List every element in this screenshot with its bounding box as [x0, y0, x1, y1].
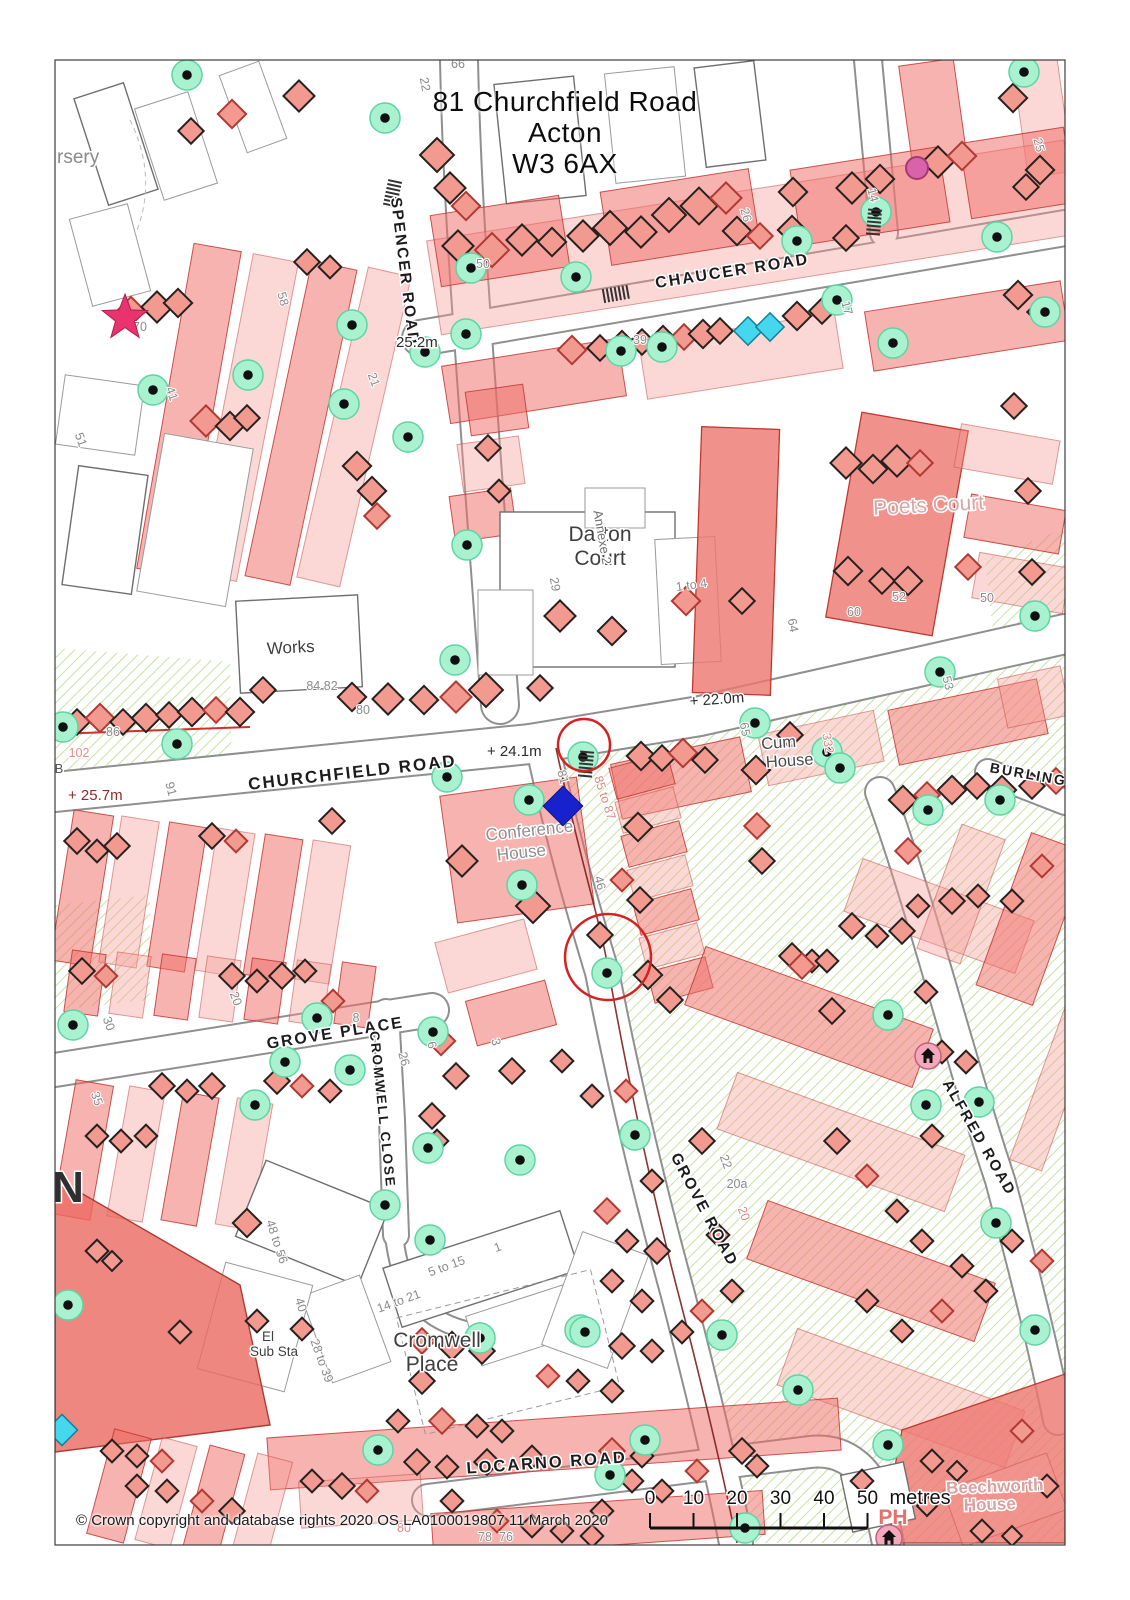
house-number-label: 78	[478, 1530, 492, 1544]
house-number-label: 102	[69, 746, 90, 760]
survey-point-marker	[1009, 57, 1039, 87]
survey-point-marker	[647, 332, 677, 362]
survey-point-marker	[981, 1208, 1011, 1238]
place-label: N	[52, 1163, 84, 1212]
map-page: SPENCER ROADCHAUCER ROADCHURCHFIELD ROAD…	[0, 0, 1130, 1600]
survey-point-marker	[413, 1133, 443, 1163]
house-number-label: 80	[356, 703, 370, 717]
house-number-label: 66	[451, 57, 465, 71]
house-number-label: 76	[499, 1530, 513, 1544]
survey-point-marker	[873, 1430, 903, 1460]
survey-point-marker	[233, 360, 263, 390]
house-number-label: 86	[106, 725, 120, 739]
survey-point-marker	[514, 785, 544, 815]
survey-point-marker	[911, 1090, 941, 1120]
survey-point-marker	[335, 1055, 365, 1085]
scale-bar-tick-label: 40	[813, 1488, 834, 1509]
survey-point-marker	[329, 389, 359, 419]
pub-icon	[876, 1525, 902, 1551]
house-number-label: 60	[847, 605, 861, 619]
place-label: Works	[266, 637, 315, 658]
survey-point-marker	[606, 336, 636, 366]
survey-point-marker	[913, 795, 943, 825]
survey-point-marker	[363, 1435, 393, 1465]
house-number-label: 84 82	[306, 679, 337, 693]
house-number-label: 8	[353, 1011, 360, 1025]
house-number-label: 64	[785, 617, 801, 633]
title-address-line: 81 Churchfield Road	[0, 86, 1130, 117]
survey-point-marker	[878, 328, 908, 358]
survey-point-marker	[48, 712, 78, 742]
survey-point-marker	[707, 1320, 737, 1350]
survey-point-marker	[561, 262, 591, 292]
place-label: B	[55, 761, 64, 776]
survey-point-marker	[370, 1190, 400, 1220]
elevation-label: 25.2m	[396, 334, 438, 351]
title-town-line: Acton	[0, 117, 1130, 148]
title-block: 81 Churchfield Road Acton W3 6AX	[0, 86, 1130, 179]
copyright-line: © Crown copyright and database rights 20…	[76, 1512, 608, 1529]
survey-point-marker	[825, 753, 855, 783]
survey-point-marker	[451, 319, 481, 349]
place-label: House	[964, 1494, 1017, 1515]
scale-bar-tick-label: 50	[857, 1488, 878, 1509]
survey-point-marker	[982, 222, 1012, 252]
survey-point-marker	[630, 1425, 660, 1455]
survey-point-marker	[620, 1120, 650, 1150]
place-label: El	[262, 1329, 274, 1344]
elevation-label: + 25.7m	[68, 787, 123, 804]
survey-point-marker	[53, 1290, 83, 1320]
elevation-label: + 24.1m	[487, 743, 542, 760]
survey-point-marker	[1020, 601, 1050, 631]
house-number-label: 50	[476, 257, 490, 271]
place-label: Place	[406, 1353, 459, 1376]
survey-point-marker	[873, 1000, 903, 1030]
survey-point-marker	[452, 530, 482, 560]
survey-point-marker	[162, 729, 192, 759]
survey-point-marker	[393, 422, 423, 452]
title-postcode-line: W3 6AX	[0, 148, 1130, 179]
house-number-label: 29	[547, 576, 563, 592]
house-number-label: 65	[737, 721, 753, 737]
survey-point-marker	[592, 958, 622, 988]
house-number-label: 52	[892, 590, 906, 604]
scale-bar-tick-label: 20	[726, 1488, 747, 1509]
survey-point-marker	[570, 1317, 600, 1347]
scale-bar-tick-label: 10	[683, 1488, 704, 1509]
house-number-label: 50	[980, 591, 994, 605]
survey-point-marker	[783, 1375, 813, 1405]
map-canvas[interactable]: SPENCER ROADCHAUCER ROADCHURCHFIELD ROAD…	[0, 0, 1130, 1600]
survey-point-marker	[240, 1090, 270, 1120]
survey-point-marker	[58, 1010, 88, 1040]
survey-point-marker	[1020, 1315, 1050, 1345]
house-number-label: 39	[633, 333, 647, 347]
survey-point-marker	[337, 310, 367, 340]
survey-point-marker	[505, 1145, 535, 1175]
place-label: Cum	[761, 733, 797, 753]
scale-bar-tick-label: 30	[770, 1488, 791, 1509]
house-number-label: 20a	[727, 1177, 748, 1191]
survey-point-marker	[1030, 297, 1060, 327]
survey-point-marker	[415, 1225, 445, 1255]
scale-bar-unit-label: metres	[890, 1487, 951, 1509]
survey-point-marker	[440, 645, 470, 675]
survey-point-marker	[985, 785, 1015, 815]
scale-bar-tick-label: 0	[645, 1488, 656, 1509]
place-label: Cromwell	[393, 1329, 481, 1352]
place-label: Sub Sta	[250, 1344, 299, 1359]
place-label: House	[765, 750, 814, 771]
survey-point-marker	[507, 870, 537, 900]
pub-icon	[915, 1043, 941, 1069]
